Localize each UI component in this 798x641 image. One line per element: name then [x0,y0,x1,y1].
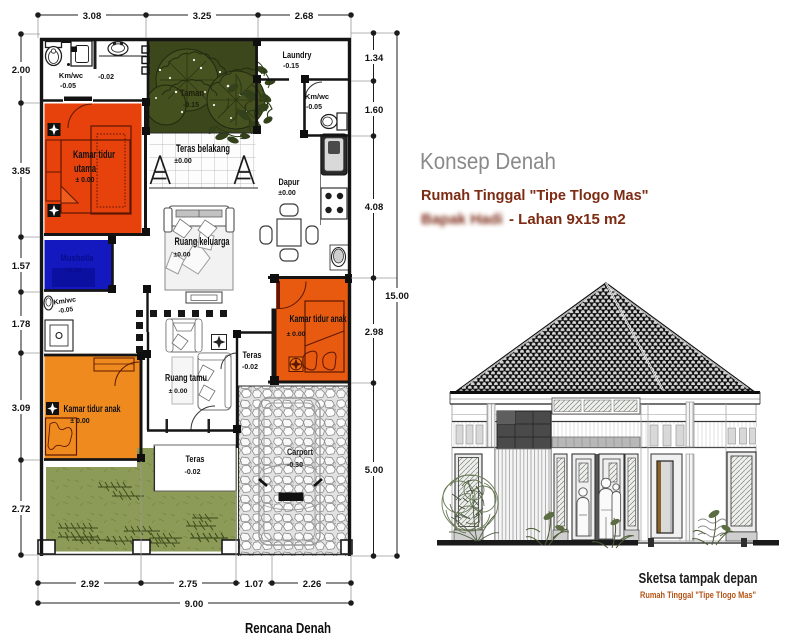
svg-text:15.00: 15.00 [385,291,409,302]
svg-text:Teras belakang: Teras belakang [176,143,230,155]
svg-text:-0.15: -0.15 [183,102,199,109]
svg-text:± 0.00: ± 0.00 [70,418,90,425]
svg-text:utama: utama [74,163,97,175]
svg-text:Carport: Carport [287,447,314,458]
svg-text:± 0.00: ± 0.00 [169,388,188,395]
svg-text:Teras: Teras [243,350,262,361]
svg-text:4.08: 4.08 [365,202,384,213]
svg-text:Rumah Tinggal "Tipe Tlogo Mas": Rumah Tinggal "Tipe Tlogo Mas" [640,590,756,601]
svg-text:Dapur: Dapur [279,177,300,188]
svg-text:Konsep Denah: Konsep Denah [420,148,556,174]
svg-text:±0.00: ±0.00 [174,158,192,165]
svg-text:-0.02: -0.02 [98,74,114,81]
svg-text:Kamar tidur anak: Kamar tidur anak [64,403,121,415]
svg-text:Musholla: Musholla [61,253,95,263]
svg-text:9.00: 9.00 [185,599,204,610]
svg-text:Rumah Tinggal "Tipe Tlogo Mas": Rumah Tinggal "Tipe Tlogo Mas" [421,188,649,204]
svg-text:1.57: 1.57 [12,261,31,272]
svg-text:1.34: 1.34 [365,53,384,64]
svg-text:-0.15: -0.15 [283,63,299,70]
svg-text:-0.05: -0.05 [60,83,76,90]
svg-text:2.00: 2.00 [12,65,31,76]
svg-text:Laundry: Laundry [283,50,313,61]
svg-text:Sketsa tampak depan: Sketsa tampak depan [639,570,758,587]
svg-text:1.78: 1.78 [12,319,31,330]
svg-text:-0.02: -0.02 [242,364,258,371]
svg-text:+0.34: +0.34 [65,267,82,274]
svg-text:Rencana Denah: Rencana Denah [245,620,331,637]
svg-text:2.75: 2.75 [179,579,198,590]
svg-text:3.25: 3.25 [193,11,212,22]
svg-text:3.09: 3.09 [12,403,31,414]
svg-text:Taman: Taman [180,88,204,99]
svg-text:3.85: 3.85 [12,166,31,177]
svg-text:-0.30: -0.30 [287,462,303,469]
svg-text:±0.00: ±0.00 [278,190,296,197]
svg-text:-0.02: -0.02 [185,469,201,476]
svg-text:2.72: 2.72 [12,504,31,515]
svg-text:Kamar tidur anak: Kamar tidur anak [290,313,347,325]
svg-text:Km/wc: Km/wc [53,296,76,306]
svg-text:3.08: 3.08 [83,11,102,22]
svg-text:Ruang keluarga: Ruang keluarga [175,236,231,248]
svg-text:2.92: 2.92 [81,579,100,590]
svg-text:±0.00: ±0.00 [174,252,191,259]
svg-text:Bapak Hadi: Bapak Hadi [421,211,503,228]
svg-text:± 0.00: ± 0.00 [287,331,306,338]
svg-text:-0.05: -0.05 [58,306,74,315]
svg-text:-0.05: -0.05 [306,104,322,111]
svg-text:5.00: 5.00 [365,465,384,476]
svg-text:Teras: Teras [186,454,205,465]
svg-text:1.60: 1.60 [365,105,384,116]
svg-text:- Lahan 9x15 m2: - Lahan 9x15 m2 [509,211,626,228]
svg-text:Km/wc: Km/wc [59,71,83,80]
svg-text:2.26: 2.26 [303,579,322,590]
svg-text:1.07: 1.07 [245,579,264,590]
svg-text:2.98: 2.98 [365,327,384,338]
svg-text:Km/wc: Km/wc [305,92,329,101]
svg-text:Kamar tidur: Kamar tidur [73,149,115,161]
svg-text:Ruang tamu: Ruang tamu [165,372,207,384]
svg-text:2.68: 2.68 [295,11,314,22]
svg-text:± 0.00: ± 0.00 [76,175,95,184]
